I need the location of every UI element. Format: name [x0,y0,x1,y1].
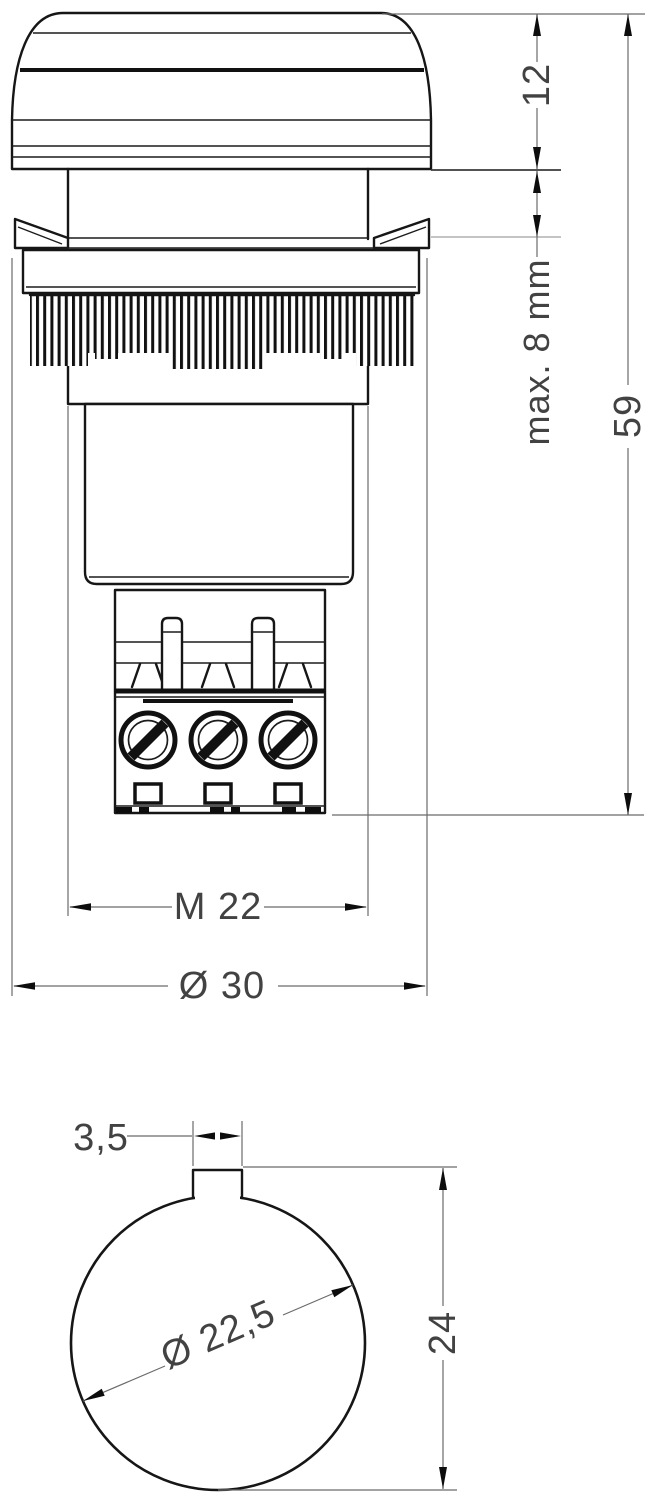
dim-59-arrow-down [624,793,632,815]
foot-3 [210,807,224,813]
terminal-bottom-strip [115,806,325,813]
dim-m22-arrow-left [69,903,91,911]
dim-max8-arrow-down [533,215,541,237]
foot-6 [305,807,321,813]
bottom-view: 3,5 Ø 22,5 24 [71,1117,464,1490]
terminal-pin-left [162,618,182,690]
dim-35-arrow-right [220,1132,241,1139]
drawing-svg: 12 max. 8 mm 59 M 22 [0,0,646,1500]
dim-m22-arrow-right [345,903,367,911]
dim-m22-label: M 22 [174,886,262,928]
dimension-total-height: 59 [607,14,646,815]
knurl-tongue-right [356,353,414,366]
foot-4 [231,807,240,813]
dim-24-label: 24 [422,1311,464,1355]
neck-section [68,169,368,239]
dimension-lens-height: 12 [516,14,558,169]
dim-59-arrow-up [624,14,632,36]
dim-d30-arrow-left [13,982,35,990]
dim-d30-label: Ø 30 [179,965,265,1007]
pin-right-outline [252,618,274,690]
knurled-locking-ring [30,295,414,369]
side-view: 12 max. 8 mm 59 M 22 [12,13,646,1007]
terminal-block [115,590,325,813]
dim-12-arrow-up [533,14,541,36]
opening-2 [205,784,231,803]
pin-left-outline [162,618,182,690]
terminal-screw-3 [261,713,315,767]
lamp-body [85,404,353,584]
dim-24-arrow-up [439,1168,447,1190]
dim-max8-arrow-up [533,171,541,193]
terminal-openings [135,784,301,803]
anti-rotation-tab [193,1168,242,1199]
dimension-tab-width: 3,5 [73,1117,242,1166]
dimension-panel-thickness: max. 8 mm [516,171,557,446]
foot-5 [282,807,296,813]
dim-35-arrow-left [194,1132,215,1139]
foot-1 [116,807,132,813]
dim-max8-label: max. 8 mm [516,258,557,445]
dim-35-label: 3,5 [73,1117,129,1159]
terminal-screw-2 [191,713,245,767]
dim-24-arrow-down [439,1467,447,1489]
lens-dome [12,13,431,169]
dim-59-label: 59 [607,394,646,438]
knurl-tongue-left-mini [95,353,118,359]
dim-12-arrow-down [533,147,541,169]
knurl-tongue-left [30,353,88,366]
terminal-pin-right [252,618,274,690]
opening-3 [275,784,301,803]
mounting-clamp-right [374,219,429,248]
foot-2 [139,807,149,813]
mounting-clamp-left [15,219,68,248]
flange-plate [23,250,419,293]
terminal-screw-1 [121,713,175,767]
technical-drawing-canvas: 12 max. 8 mm 59 M 22 [0,0,646,1500]
lamp-body-outline [85,404,353,584]
tab-mask [195,1168,240,1199]
knurl-band [30,295,414,353]
knurl-tongue-center [172,353,264,369]
dim-12-label: 12 [516,63,558,107]
dim-d30-arrow-right [404,982,426,990]
opening-1 [135,784,161,803]
knurl-tongue-right-mini [320,353,343,359]
